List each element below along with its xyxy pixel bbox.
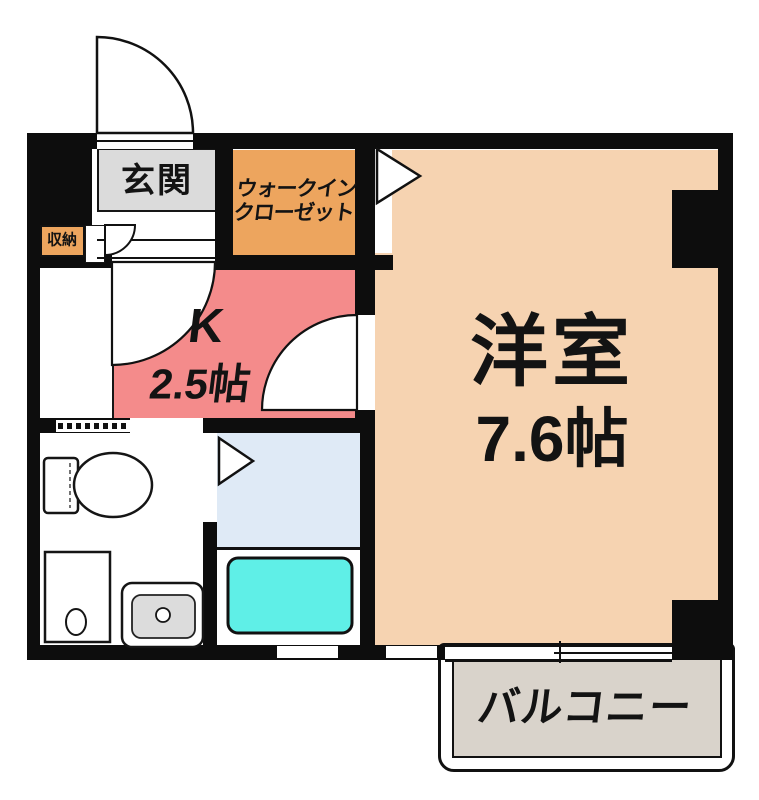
floor-plan-canvas: 玄関 ウォークイン クローゼット 収納 K 2.5帖 洋室 7.6帖 バルコニー (0, 0, 759, 800)
label-western-room-area: 7.6帖 (476, 404, 629, 476)
toilet-bowl (74, 453, 152, 517)
shower-door-marker (219, 438, 253, 484)
label-western-room: 洋室 (470, 308, 634, 395)
bathtub-fixture (228, 558, 352, 633)
washbasin-drain (156, 608, 170, 622)
label-storage: 収納 (47, 233, 77, 250)
label-balcony: バルコニー (475, 683, 695, 730)
label-genkan: 玄関 (121, 162, 193, 200)
label-walk-in-closet: ウォークイン クローゼット (232, 177, 358, 224)
storage-door-arc (105, 225, 135, 255)
kitchen-room-door-arc (262, 315, 357, 410)
room-door-marker (377, 149, 420, 203)
washer-pan-drain (66, 609, 86, 635)
label-kitchen-area: 2.5帖 (147, 360, 253, 407)
entrance-door-arc (97, 37, 193, 133)
label-walk-in-closet-line1: ウォークイン (235, 177, 358, 200)
label-walk-in-closet-line2: クローゼット (232, 201, 355, 224)
fixtures-overlay (0, 0, 759, 800)
label-kitchen: K (185, 300, 226, 354)
